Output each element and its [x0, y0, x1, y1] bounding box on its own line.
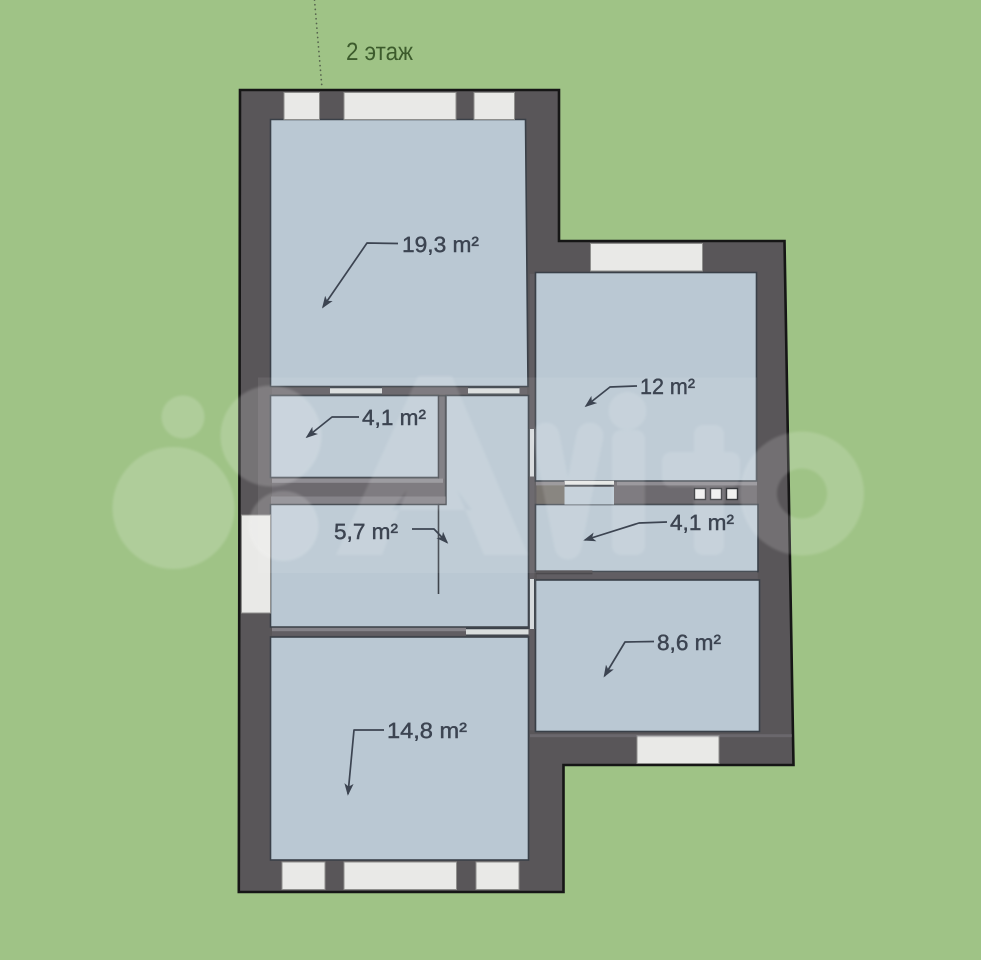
- svg-text:5,7 m²: 5,7 m²: [334, 519, 398, 544]
- svg-text:14,8 m²: 14,8 m²: [387, 718, 467, 743]
- svg-text:8,6 m²: 8,6 m²: [657, 630, 721, 655]
- svg-text:4,1 m²: 4,1 m²: [362, 405, 426, 430]
- svg-text:12 m²: 12 m²: [640, 374, 695, 399]
- svg-text:2 этаж: 2 этаж: [346, 38, 413, 66]
- svg-text:4,1 m²: 4,1 m²: [670, 510, 734, 535]
- svg-text:19,3 m²: 19,3 m²: [402, 232, 479, 257]
